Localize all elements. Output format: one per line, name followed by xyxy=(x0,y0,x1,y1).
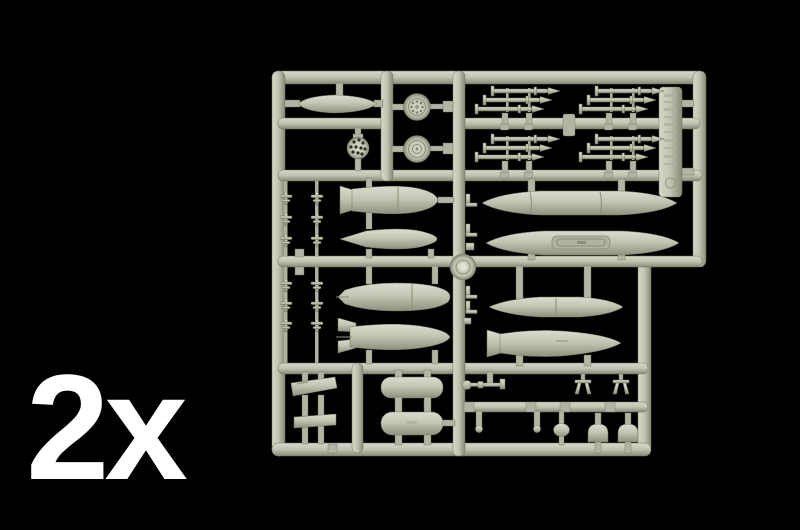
part-round-knob xyxy=(554,411,570,445)
part-pin-ball-2 xyxy=(533,411,540,433)
runner-connector-block xyxy=(560,402,570,412)
part-slim-tank xyxy=(489,266,623,317)
runner-connector-block xyxy=(464,402,474,412)
part-micro-missile xyxy=(311,234,323,247)
part-bracket-small xyxy=(466,301,477,314)
part-micro-missile xyxy=(311,279,323,292)
photo-stage: 2x xyxy=(0,0,800,530)
part-bracket-small xyxy=(466,194,477,207)
part-brace-small-2 xyxy=(613,374,629,394)
runner-connector-block xyxy=(563,114,575,136)
part-bomb-finned xyxy=(340,178,454,229)
runner-connector-block xyxy=(605,402,615,412)
part-brace-small-1 xyxy=(575,374,591,394)
part-pin-ball-1 xyxy=(475,411,482,433)
quantity-label: 2x xyxy=(26,352,183,502)
part-square-small xyxy=(466,243,474,250)
part-drop-tank-1 xyxy=(482,179,677,215)
runner-v1 xyxy=(381,71,393,181)
runner-connector-block xyxy=(526,402,536,412)
part-flared-nose-pod xyxy=(487,330,621,366)
runner-h2 xyxy=(278,170,702,181)
part-bomb-sleek xyxy=(340,229,437,258)
part-micro-missile xyxy=(311,192,323,205)
runner-v3 xyxy=(352,363,363,453)
sprue-frame xyxy=(272,71,706,456)
part-bracket-small xyxy=(466,286,477,299)
part-micro-missile xyxy=(311,213,323,226)
part-perforated-ball xyxy=(347,128,369,171)
part-pylon-plate-1 xyxy=(291,372,337,396)
part-round-hub xyxy=(450,254,476,280)
part-wheel-spoked xyxy=(392,94,453,121)
part-pylon-plate-2 xyxy=(294,395,336,444)
frame-right-lower-bar xyxy=(638,256,651,453)
part-micro-missile xyxy=(311,319,323,332)
part-bracket-small xyxy=(466,224,477,237)
frame-top-bar xyxy=(272,71,706,84)
tank-panel-slot xyxy=(577,241,586,244)
runner-h3 xyxy=(278,256,702,267)
part-micro-missile xyxy=(311,299,323,312)
runner-connector-block xyxy=(295,249,304,257)
runner-h5 xyxy=(459,402,648,412)
part-small-fuel-tank xyxy=(285,83,383,113)
runner-connector-block xyxy=(328,444,337,453)
pod-slot xyxy=(406,421,417,424)
part-pitot-probe xyxy=(463,372,506,390)
runner-h1-left xyxy=(278,118,393,129)
part-square-small xyxy=(464,318,471,324)
frame-right-upper-bar xyxy=(693,71,706,267)
runner-connector-block xyxy=(295,267,304,275)
part-drop-tank-2 xyxy=(486,231,679,260)
part-wheel-hub xyxy=(392,136,453,163)
part-bomb-large xyxy=(336,266,450,311)
part-bomb-box-fins xyxy=(336,318,450,364)
part-gun-pod-2 xyxy=(381,397,455,445)
